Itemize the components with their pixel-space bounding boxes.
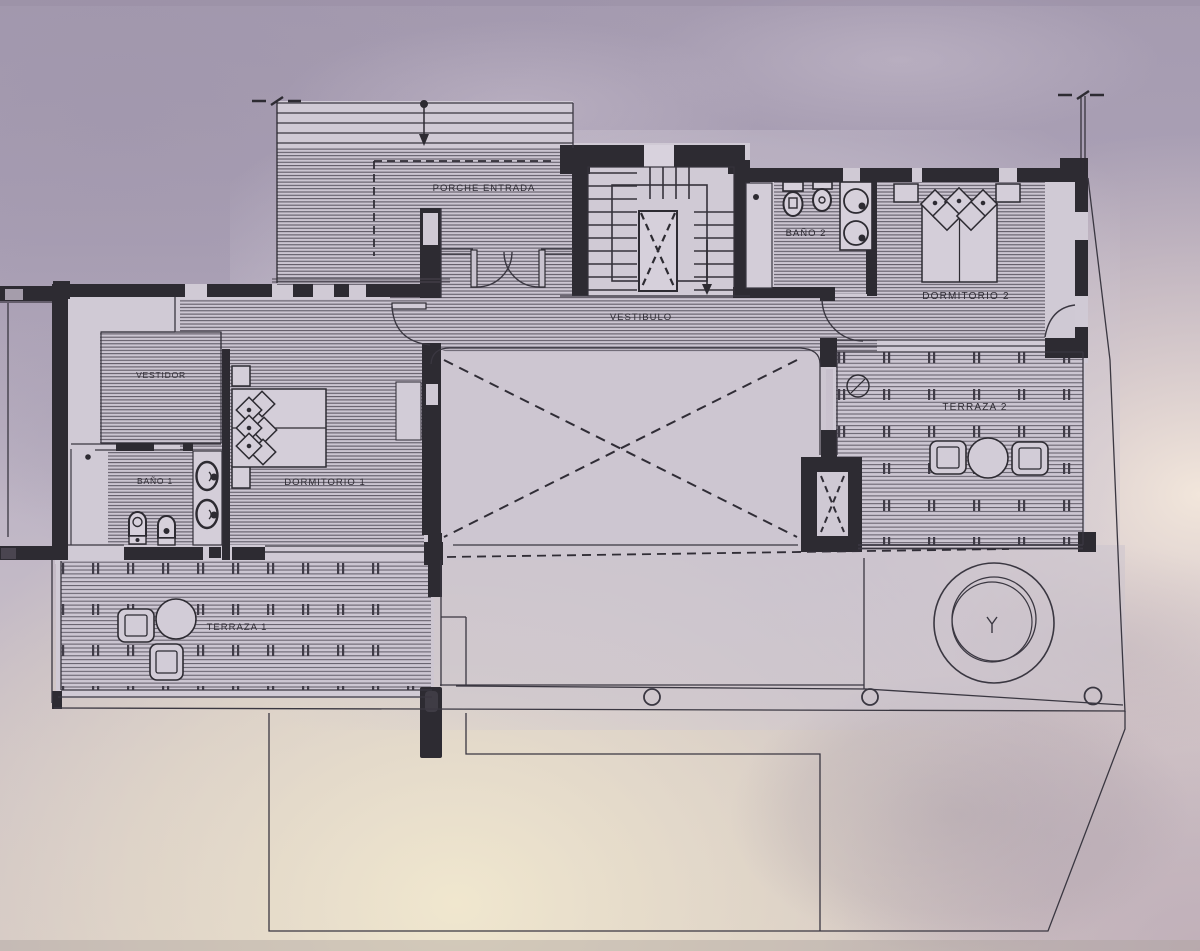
svg-text:BAÑO 1: BAÑO 1 xyxy=(137,476,173,486)
svg-text:BAÑO 2: BAÑO 2 xyxy=(786,228,827,239)
svg-text:TERRAZA 1: TERRAZA 1 xyxy=(207,622,268,633)
svg-text:DORMITORIO 2: DORMITORIO 2 xyxy=(922,291,1010,302)
svg-text:TERRAZA 2: TERRAZA 2 xyxy=(942,402,1007,413)
svg-text:VESTIDOR: VESTIDOR xyxy=(136,370,186,380)
svg-text:PORCHE ENTRADA: PORCHE ENTRADA xyxy=(433,183,536,194)
svg-text:VESTIBULO: VESTIBULO xyxy=(610,312,672,323)
svg-text:DORMITORIO 1: DORMITORIO 1 xyxy=(284,477,366,488)
